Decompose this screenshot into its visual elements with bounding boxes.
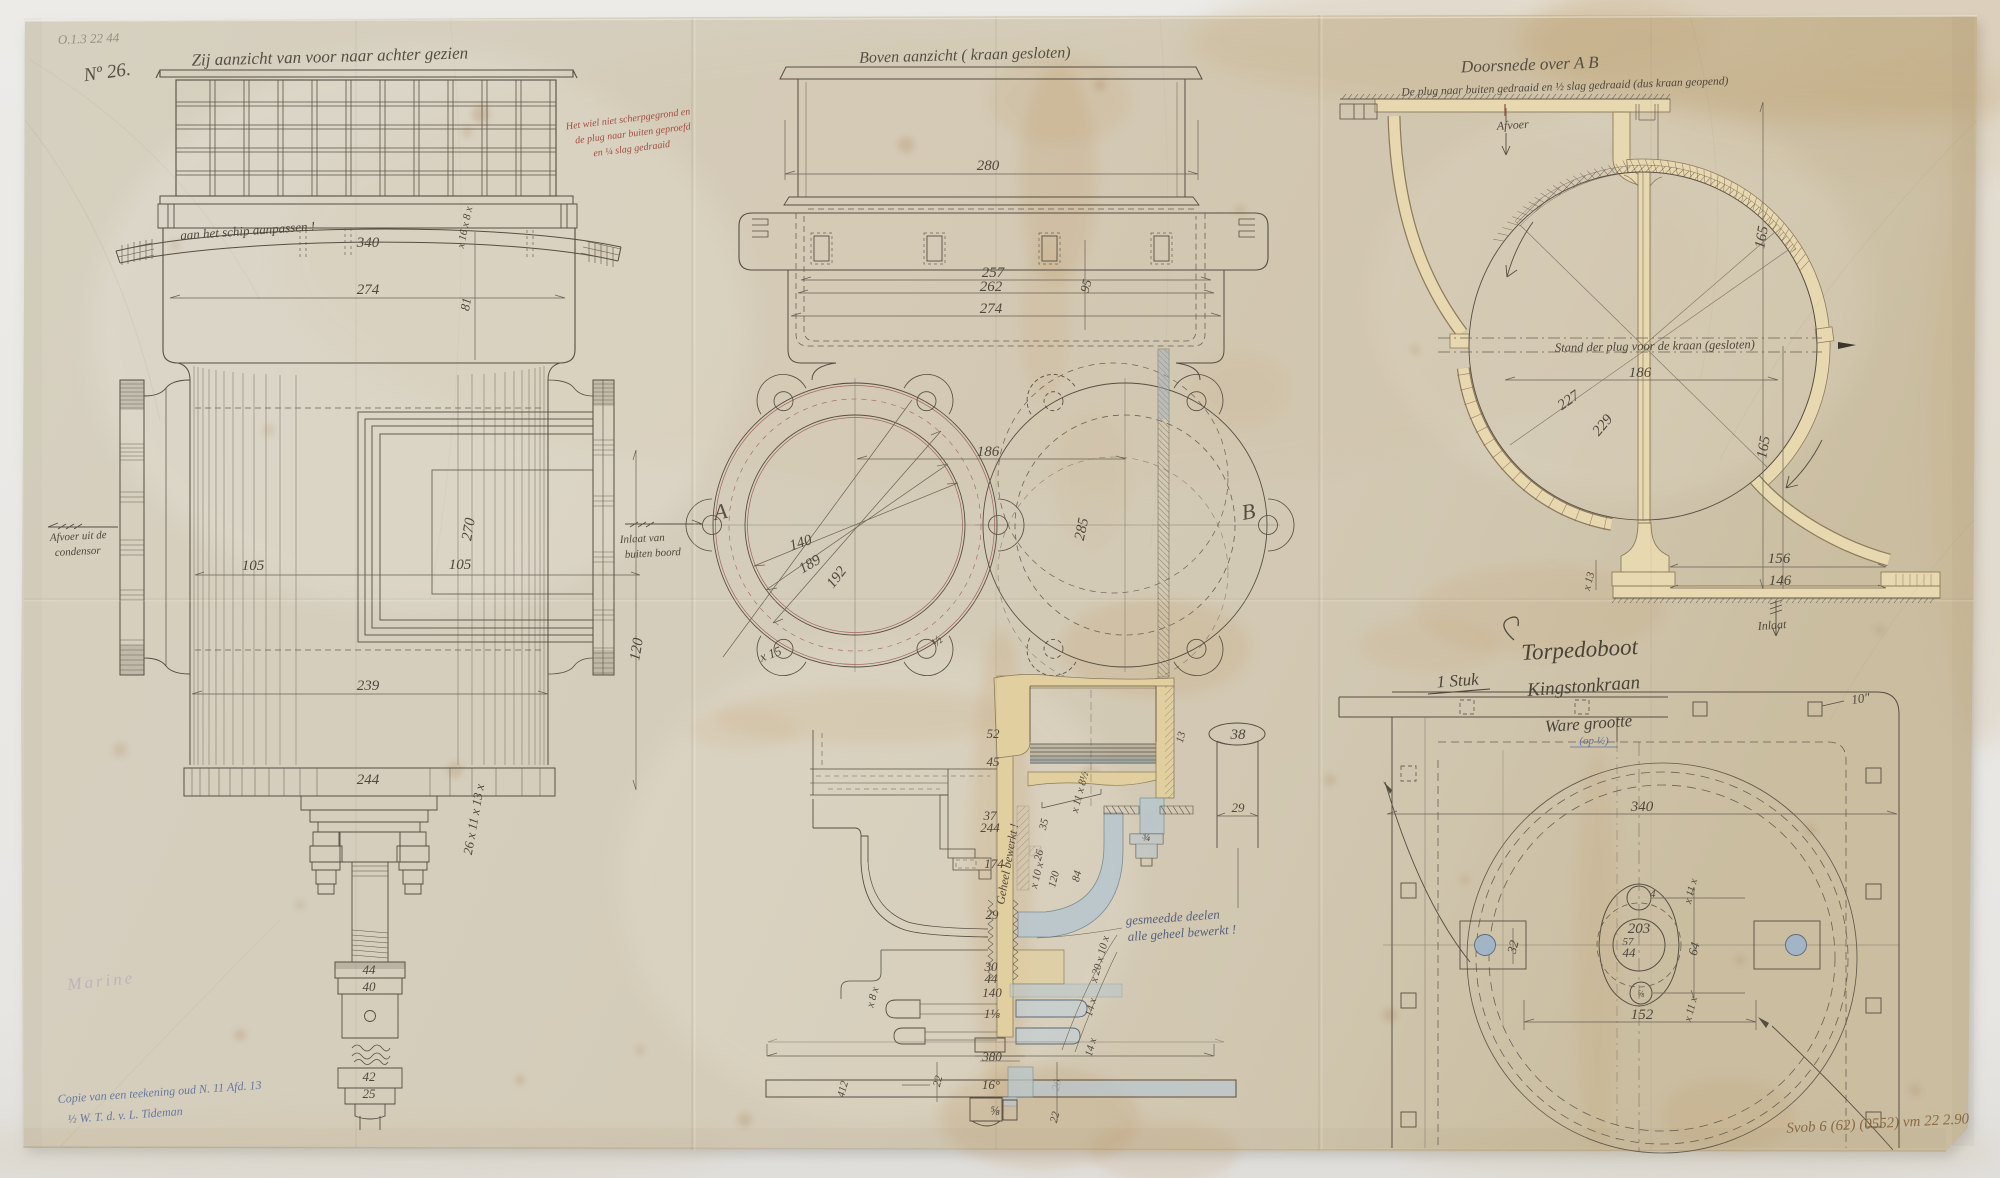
svg-text:16°: 16° bbox=[982, 1077, 1000, 1092]
svg-text:146: 146 bbox=[1769, 573, 1792, 589]
svg-text:condensor: condensor bbox=[55, 545, 102, 559]
svg-text:105: 105 bbox=[449, 557, 472, 573]
svg-text:38: 38 bbox=[1230, 727, 1247, 743]
svg-text:140: 140 bbox=[982, 985, 1002, 1000]
svg-text:Inlaat van: Inlaat van bbox=[619, 532, 666, 546]
svg-text:42: 42 bbox=[363, 1069, 377, 1084]
svg-text:262: 262 bbox=[980, 279, 1003, 295]
svg-text:1 Stuk: 1 Stuk bbox=[1436, 670, 1480, 692]
svg-text:244: 244 bbox=[357, 772, 380, 788]
svg-text:25: 25 bbox=[363, 1086, 377, 1101]
svg-text:105: 105 bbox=[242, 558, 265, 574]
svg-text:⅝: ⅝ bbox=[1638, 989, 1645, 999]
svg-text:239: 239 bbox=[357, 678, 380, 694]
svg-text:45: 45 bbox=[987, 754, 1001, 769]
svg-text:Inlaat: Inlaat bbox=[1756, 617, 1787, 633]
svg-text:¾: ¾ bbox=[1142, 832, 1150, 844]
svg-text:186: 186 bbox=[1629, 365, 1652, 381]
svg-text:340: 340 bbox=[356, 235, 380, 251]
svg-text:O.1.3 22 44: O.1.3 22 44 bbox=[58, 30, 120, 47]
svg-text:52: 52 bbox=[987, 726, 1001, 741]
svg-text:274: 274 bbox=[357, 282, 380, 298]
svg-text:274: 274 bbox=[980, 301, 1003, 317]
svg-text:44: 44 bbox=[1623, 945, 1637, 960]
svg-text:380: 380 bbox=[981, 1049, 1002, 1064]
svg-text:44: 44 bbox=[363, 962, 377, 977]
svg-text:10″: 10″ bbox=[1850, 689, 1871, 706]
svg-text:40: 40 bbox=[363, 979, 377, 994]
svg-text:1⅛: 1⅛ bbox=[984, 1006, 1001, 1021]
svg-text:156: 156 bbox=[1768, 551, 1791, 567]
svg-text:244: 244 bbox=[980, 820, 1000, 835]
svg-text:29: 29 bbox=[1232, 800, 1246, 815]
svg-text:(op ½): (op ½) bbox=[1579, 735, 1609, 747]
svg-text:Afvoer: Afvoer bbox=[1495, 117, 1529, 133]
